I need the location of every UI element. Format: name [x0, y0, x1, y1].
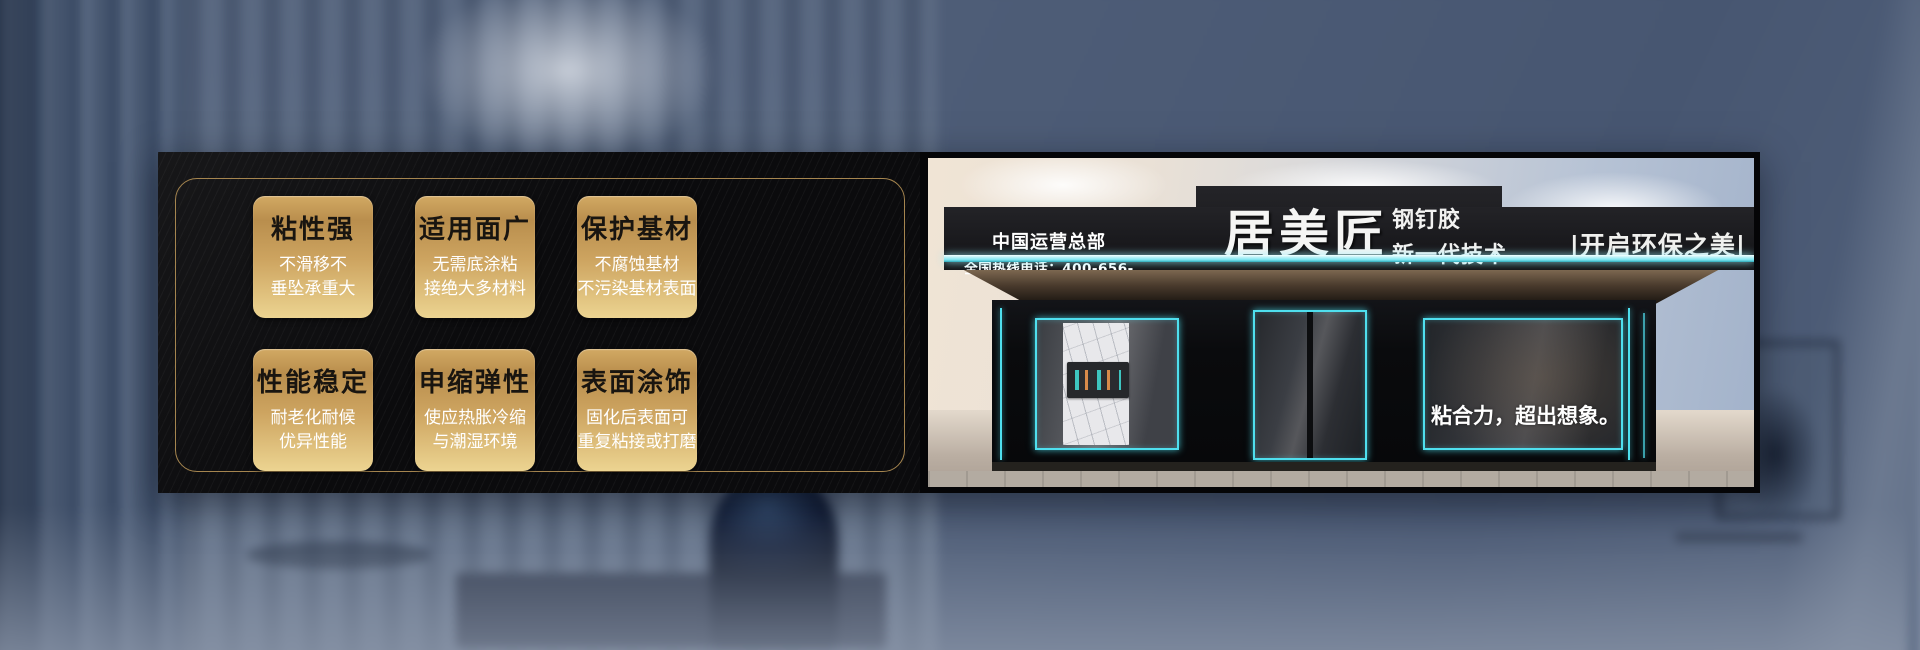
feature-card-surface-finish: 表面涂饰 固化后表面可 重复粘接或打磨	[577, 349, 697, 471]
feature-subtitle-line1: 使应热胀冷缩	[415, 406, 535, 430]
feature-subtitle-line2: 优异性能	[253, 430, 373, 454]
feature-subtitle: 固化后表面可 重复粘接或打磨	[577, 406, 697, 454]
feature-subtitle: 使应热胀冷缩 与潮湿环境	[415, 406, 535, 454]
feature-subtitle-line2: 不污染基材表面	[577, 277, 697, 301]
feature-title: 表面涂饰	[577, 362, 697, 399]
sign-hq-title: 中国运营总部	[954, 228, 1144, 254]
feature-card-adhesion: 粘性强 不滑移不 垂坠承重大	[253, 196, 373, 318]
product-swatches	[1075, 370, 1121, 390]
feature-subtitle-line1: 固化后表面可	[577, 406, 697, 430]
feature-title: 申缩弹性	[415, 362, 535, 399]
feature-subtitle-line1: 不腐蚀基材	[577, 253, 697, 277]
display-window-right: 粘合力，超出想象。	[1423, 318, 1623, 450]
feature-title: 保护基材	[577, 209, 697, 246]
canopy-soffit	[948, 270, 1734, 304]
facade-led-edge-right-outer	[1643, 313, 1645, 458]
feature-title: 粘性强	[253, 209, 373, 246]
feature-title: 适用面广	[415, 209, 535, 246]
display-window-left	[1035, 318, 1179, 450]
feature-title: 性能稳定	[253, 362, 373, 399]
sign-product-name: 钢钉胶	[1392, 202, 1507, 234]
feature-subtitle-line2: 重复粘接或打磨	[577, 430, 697, 454]
feature-subtitle: 不滑移不 垂坠承重大	[253, 253, 373, 301]
feature-subtitle-line2: 垂坠承重大	[253, 277, 373, 301]
feature-subtitle-line1: 不滑移不	[253, 253, 373, 277]
facade-led-edge-left	[1000, 308, 1002, 460]
feature-card-substrate-protection: 保护基材 不腐蚀基材 不污染基材表面	[577, 196, 697, 318]
feature-subtitle-line2: 与潮湿环境	[415, 430, 535, 454]
feature-card-applicability: 适用面广 无需底涂粘 接绝大多材料	[415, 196, 535, 318]
feature-card-elasticity: 申缩弹性 使应热胀冷缩 与潮湿环境	[415, 349, 535, 471]
sidewalk-paving	[928, 471, 1754, 487]
product-display-board	[1067, 362, 1129, 398]
door-center-divider	[1307, 312, 1313, 458]
feature-subtitle-line2: 接绝大多材料	[415, 277, 535, 301]
feature-subtitle: 不腐蚀基材 不污染基材表面	[577, 253, 697, 301]
feature-card-grid: 粘性强 不滑移不 垂坠承重大 适用面广 无需底涂粘 接绝大多材料 保护基材 不腐…	[253, 196, 697, 471]
storefront-threshold	[992, 462, 1656, 471]
feature-subtitle: 耐老化耐候 优异性能	[253, 406, 373, 454]
storefront-photo: 中国运营总部 全国热线电话：400-656-8678 居美匠 钢钉胶 新一代技术…	[928, 158, 1754, 487]
facade-led-edge-right	[1628, 308, 1630, 460]
feature-subtitle-line1: 无需底涂粘	[415, 253, 535, 277]
feature-panel: 粘性强 不滑移不 垂坠承重大 适用面广 无需底涂粘 接绝大多材料 保护基材 不腐…	[158, 152, 920, 493]
promo-banner: 粘性强 不滑移不 垂坠承重大 适用面广 无需底涂粘 接绝大多材料 保护基材 不腐…	[158, 152, 1760, 493]
feature-subtitle-line1: 耐老化耐候	[253, 406, 373, 430]
window-slogan-text: 粘合力，超出想象。	[1431, 400, 1620, 430]
feature-subtitle: 无需底涂粘 接绝大多材料	[415, 253, 535, 301]
background-bright-wall	[418, 0, 718, 163]
background-floor-light	[0, 508, 1908, 650]
sign-led-strip	[944, 255, 1754, 262]
sign-product-tagline: 新一代技术	[1392, 237, 1507, 269]
feature-card-stability: 性能稳定 耐老化耐候 优异性能	[253, 349, 373, 471]
entrance-glass-door	[1253, 310, 1367, 460]
